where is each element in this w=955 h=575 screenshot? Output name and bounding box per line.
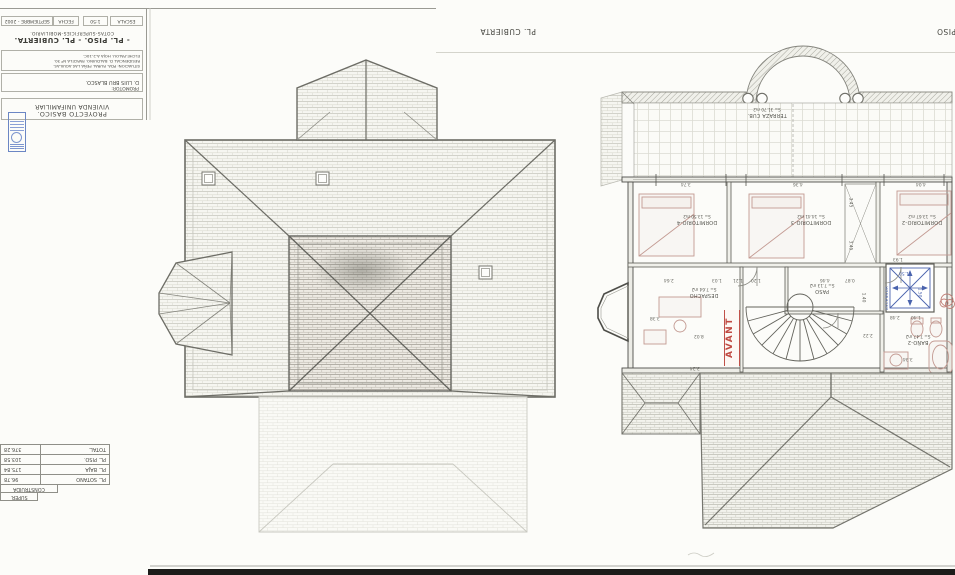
roof-gable [297, 60, 437, 140]
surface-row: TOTAL.376.28 [0, 444, 110, 455]
promotor-label: PROMOTOR: [5, 85, 139, 90]
avant-stamp: AVANT [724, 310, 740, 366]
dimension-label: 3.45 [847, 198, 852, 208]
room-name: DORMITORIO-2 [891, 219, 953, 225]
dimension-label: 2.48 [890, 314, 900, 319]
surface-header-1: SUPER. [0, 492, 38, 501]
dimension-label: 1.21 [733, 277, 743, 282]
room-name: DESPACHO [676, 292, 732, 298]
room-name: DORMITORIO-4 [666, 219, 728, 225]
escala-label: ESCALA [110, 16, 143, 26]
room-area: S= 14.41 m2 [780, 214, 842, 219]
dimension-label: 2.64 [664, 277, 674, 282]
visado-stamp [8, 112, 26, 152]
room-name: TERRAZA CUB. [737, 112, 797, 118]
surface-row: PL. PISO.103.58 [0, 454, 110, 465]
surface-row-label: PL. BAJA [40, 464, 110, 475]
roof-plan [159, 60, 555, 532]
room-area: S= 7.13 m2 [800, 283, 844, 288]
sheet-title: - PL. PISO. - PL. CUBIERTA. [1, 36, 143, 44]
escala-value: 1:50 [83, 16, 108, 26]
surface-row-value: 96.78 [0, 474, 41, 485]
escala-row: ESCALA 1:50 FECHA SEPTIEMBRE - 2002 [1, 16, 143, 26]
dimension-label: 0.87 [845, 277, 855, 282]
dimension-label: 1.40 [911, 314, 921, 319]
room-name: PASO [800, 288, 844, 294]
situacion-line1: SITUACION: PDA. RURAL PEÑA LAS AGUILAS. [4, 64, 140, 69]
dimension-label: 3.34 [903, 356, 913, 361]
room-area: S= 7.64 m2 [676, 287, 732, 292]
stamp-lines [10, 121, 24, 131]
room-label: DORMITORIO-4S= 13.50 m2 [666, 214, 728, 225]
dimension-label: 3.45 [847, 241, 852, 251]
dimension-label: 2.22 [863, 332, 873, 337]
promotor-name: D. LUIS BRU BLASCO. [5, 79, 139, 85]
room-area: S= 13.67 m2 [891, 214, 953, 219]
terrace-side-roof [601, 92, 622, 186]
dimension-label: 1.93 [893, 256, 903, 261]
proyecto-line2: VIVIENDA UNIFAMILIAR [2, 103, 142, 110]
room-label: BAÑO-2S= 7.47 m2 [894, 334, 942, 345]
wardrobe [845, 184, 876, 263]
surface-table: SUPER. CONSTRUIDA PL. SOTANO96.78PL. BAJ… [0, 444, 110, 501]
dimension-label: 4.04 [916, 181, 926, 186]
floor-plan-drawing [598, 46, 955, 528]
elevator-label: ASCENSOR [884, 268, 892, 310]
room-name: DORMITORIO-3 [780, 219, 842, 225]
surface-table-header: SUPER. CONSTRUIDA [0, 484, 110, 501]
surface-row-label: PL. SOTANO [40, 474, 110, 485]
lower-roofs [622, 373, 952, 528]
room-label: TERRAZA CUB.S= 31.70 m2 [737, 107, 797, 118]
column [757, 93, 767, 103]
surface-table-rows: PL. SOTANO96.78PL. BAJA175.84PL. PISO.10… [0, 444, 110, 485]
situacion-block: SITUACION: PDA. RURAL PEÑA LAS AGUILAS. … [1, 50, 143, 71]
fecha-label: FECHA [53, 16, 78, 26]
surface-header-2: CONSTRUIDA [0, 484, 58, 493]
elevator [886, 264, 934, 312]
dimension-label: 3.74 [681, 181, 691, 186]
surface-row: PL. SOTANO96.78 [0, 474, 110, 485]
dimension-label: 1.40 [860, 293, 865, 303]
sheet-subtitle: COTAS-SUPERFICIES-MOBILIARIO. [1, 30, 143, 35]
room-area: S= 7.47 m2 [894, 334, 942, 339]
scanned-plan-sheet: { "sheet": { "escala_label": "ESCALA", "… [0, 0, 955, 575]
bay-window [598, 283, 628, 341]
room-area: S= 31.70 m2 [737, 107, 797, 112]
room-label: DESPACHOS= 7.64 m2 [676, 287, 732, 298]
dimension-label: 8.02 [694, 333, 704, 338]
room-label: DORMITORIO-2S= 13.67 m2 [891, 214, 953, 225]
stamp-seal-icon [12, 132, 23, 143]
dimension-label: 1.03 [712, 277, 722, 282]
surface-row-value: 376.28 [0, 444, 41, 455]
surface-row: PL. BAJA175.84 [0, 464, 110, 475]
dimension-label: 3.38 [650, 315, 660, 320]
title-block: PROYECTO BASICO. VIVIENDA UNIFAMILIAR PR… [1, 8, 143, 120]
surface-row-label: TOTAL. [40, 444, 110, 455]
stamp-lines [10, 144, 24, 150]
promotor-block: PROMOTOR: D. LUIS BRU BLASCO. [1, 73, 143, 92]
plan-title-piso: PL. PISO [918, 27, 955, 36]
dimension-label: 3.24 [690, 365, 700, 370]
fecha-value: SEPTIEMBRE - 2002 [1, 16, 53, 26]
column [853, 93, 863, 103]
column [743, 93, 753, 103]
room-label: DORMITORIO-3S= 14.41 m2 [780, 214, 842, 225]
surface-row-value: 103.58 [0, 454, 41, 465]
dimension-label: 4.36 [793, 181, 803, 186]
dimension-label: 1.50 [916, 288, 921, 298]
roof-bay [159, 252, 232, 355]
dimension-label: 4.46 [820, 277, 830, 282]
room-label: PASOS= 7.13 m2 [800, 283, 844, 294]
column [840, 93, 850, 103]
room-name: BAÑO-2 [894, 339, 942, 345]
room-area: S= 13.50 m2 [666, 214, 728, 219]
dimension-label: 1.50 [899, 270, 909, 275]
plan-title-cubierta: PL. CUBIERTA [462, 27, 554, 36]
terrace-parapet [622, 46, 952, 104]
dimension-label: 1.20 [751, 277, 761, 282]
surface-row-value: 175.84 [0, 464, 41, 475]
surface-row-label: PL. PISO. [40, 454, 110, 465]
roof-lower-faint [259, 397, 527, 532]
situacion-line2: RESIDENCIAL D. BALDUINO. PARCELA Nº 30. [4, 59, 140, 64]
